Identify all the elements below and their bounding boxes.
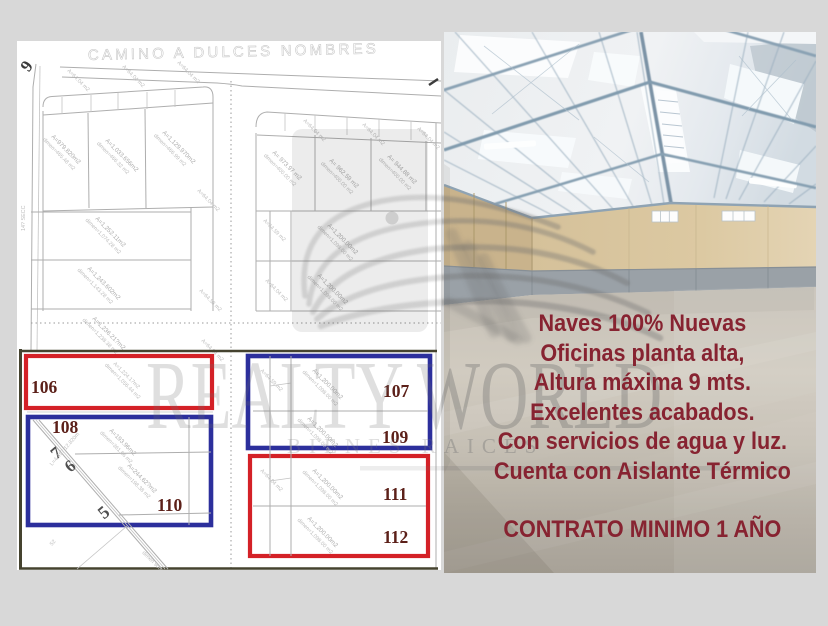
svg-text:107: 107 [383, 381, 410, 401]
svg-text:A=64.04 m2: A=64.04 m2 [264, 278, 289, 303]
svg-text:A=64.04 m2: A=64.04 m2 [416, 126, 441, 151]
svg-text:9: 9 [17, 57, 37, 75]
svg-text:52: 52 [49, 539, 57, 547]
svg-text:A=64.04 m2: A=64.04 m2 [121, 64, 146, 89]
svg-text:5: 5 [94, 502, 114, 523]
svg-text:112: 112 [383, 527, 408, 547]
svg-text:A=64.59 m2: A=64.59 m2 [262, 218, 287, 243]
svg-text:109: 109 [382, 427, 409, 447]
svg-text:A=64.04 m2: A=64.04 m2 [66, 68, 91, 93]
svg-text:A=64.58 m2: A=64.58 m2 [198, 288, 223, 313]
svg-text:14? SECC: 14? SECC [21, 205, 27, 231]
svg-text:CAMINO A DULCES NOMBRES: CAMINO A DULCES NOMBRES [88, 41, 379, 64]
svg-text:106: 106 [31, 377, 58, 397]
svg-text:A=64.59 m2: A=64.59 m2 [259, 368, 284, 393]
svg-text:110: 110 [157, 495, 183, 515]
svg-text:A=64.04 m2: A=64.04 m2 [302, 118, 327, 143]
svg-text:111: 111 [383, 484, 407, 504]
svg-text:A=64.04 m2: A=64.04 m2 [196, 188, 221, 213]
svg-text:A=64.04 m2: A=64.04 m2 [259, 468, 284, 493]
svg-text:A=64.04 m2: A=64.04 m2 [361, 122, 386, 147]
